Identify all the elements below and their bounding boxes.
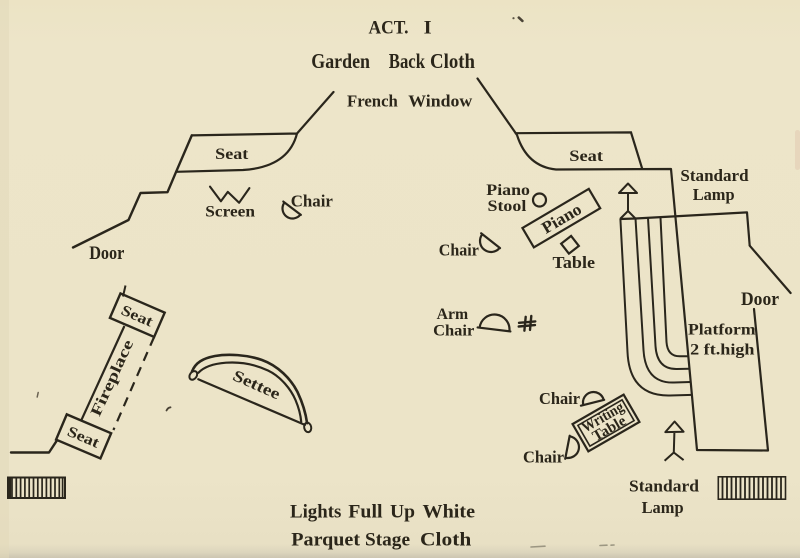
svg-text:Table: Table [553, 253, 596, 272]
svg-text:ACT.: ACT. [369, 18, 409, 39]
svg-text:Up: Up [390, 502, 415, 523]
svg-text:Door: Door [89, 243, 125, 264]
svg-text:French: French [347, 92, 398, 111]
svg-text:Seat: Seat [215, 146, 249, 163]
svg-text:Chair: Chair [439, 241, 479, 260]
svg-text:Back: Back [389, 49, 425, 73]
svg-text:Window: Window [408, 92, 473, 111]
svg-text:Seat: Seat [569, 148, 603, 165]
svg-text:Screen: Screen [205, 204, 255, 221]
svg-text:Lamp: Lamp [693, 185, 735, 204]
svg-text:Door: Door [741, 289, 780, 310]
svg-text:Arm: Arm [437, 306, 469, 323]
svg-text:Lamp: Lamp [642, 498, 684, 517]
svg-text:Full: Full [348, 502, 382, 523]
svg-text:Chair: Chair [523, 448, 564, 467]
svg-text:Piano: Piano [486, 182, 530, 199]
svg-text:Platform: Platform [688, 321, 756, 338]
svg-text:Stage: Stage [365, 530, 410, 551]
svg-text:Chair: Chair [291, 192, 334, 211]
svg-text:Standard: Standard [680, 166, 749, 185]
svg-text:Lights: Lights [290, 502, 341, 523]
svg-text:Standard: Standard [629, 477, 700, 496]
svg-text:White: White [423, 502, 476, 523]
svg-text:I: I [424, 18, 432, 39]
svg-text:Garden: Garden [311, 49, 370, 73]
svg-text:Chair: Chair [539, 389, 580, 408]
svg-text:Cloth: Cloth [420, 530, 472, 551]
svg-text:Stool: Stool [488, 198, 527, 215]
svg-text:Chair: Chair [433, 323, 474, 340]
svg-text:2 ft.high: 2 ft.high [690, 342, 755, 359]
svg-text:Parquet: Parquet [291, 530, 360, 551]
svg-text:Cloth: Cloth [430, 49, 475, 73]
